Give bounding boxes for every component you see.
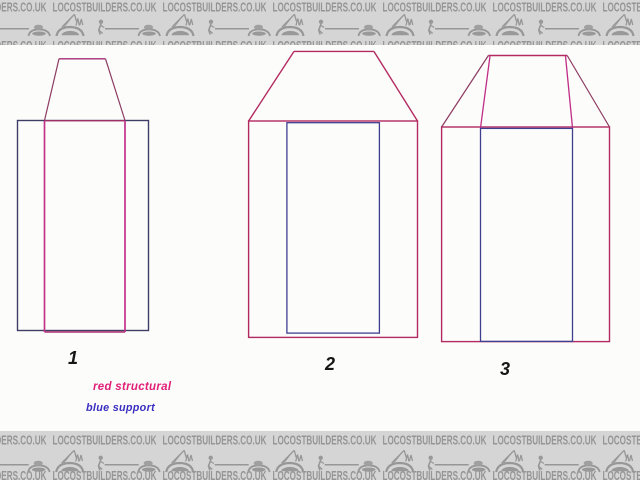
svg-text:LOCOSTBUILDERS.CO.UK: LOCOSTBUILDERS.CO.UK <box>53 0 157 14</box>
svg-text:2: 2 <box>324 354 335 374</box>
svg-text:LOCOSTBUILDERS.CO.UK: LOCOSTBUILDERS.CO.UK <box>53 433 157 448</box>
svg-text:LOCOSTBUILDERS.CO.UK: LOCOSTBUILDERS.CO.UK <box>273 0 377 14</box>
svg-text:LOCOSTBUILDERS.CO.UK: LOCOSTBUILDERS.CO.UK <box>273 433 377 448</box>
svg-text:LOCOSTBUILDERS.CO.UK: LOCOSTBUILDERS.CO.UK <box>603 433 640 448</box>
svg-text:LOCOSTBUILDERS.CO.UK: LOCOSTBUILDERS.CO.UK <box>603 0 640 14</box>
svg-text:LOCOSTBUILDERS.CO.UK: LOCOSTBUILDERS.CO.UK <box>0 433 47 448</box>
svg-text:LOCOSTBUILDERS.CO.UK: LOCOSTBUILDERS.CO.UK <box>0 0 47 14</box>
svg-text:LOCOSTBUILDERS.CO.UK: LOCOSTBUILDERS.CO.UK <box>163 433 267 448</box>
svg-text:red structural: red structural <box>93 381 172 393</box>
svg-text:LOCOSTBUILDERS.CO.UK: LOCOSTBUILDERS.CO.UK <box>383 433 487 448</box>
svg-text:LOCOSTBUILDERS.CO.UK: LOCOSTBUILDERS.CO.UK <box>493 433 597 448</box>
svg-text:LOCOSTBUILDERS.CO.UK: LOCOSTBUILDERS.CO.UK <box>163 0 267 14</box>
svg-text:3: 3 <box>500 359 510 379</box>
svg-text:1: 1 <box>68 348 78 368</box>
svg-text:LOCOSTBUILDERS.CO.UK: LOCOSTBUILDERS.CO.UK <box>493 0 597 14</box>
svg-text:blue support: blue support <box>86 402 155 414</box>
svg-text:LOCOSTBUILDERS.CO.UK: LOCOSTBUILDERS.CO.UK <box>383 0 487 14</box>
